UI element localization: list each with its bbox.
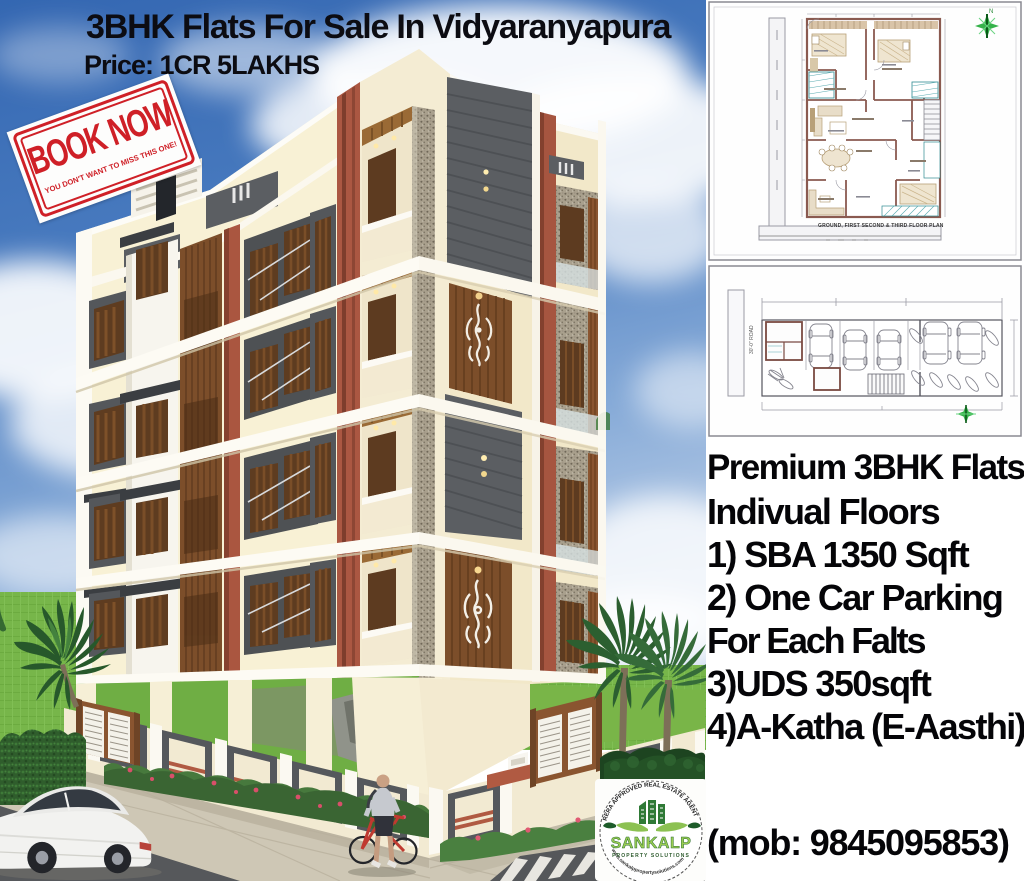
svg-text:GROUND, FIRST SECOND & THIRD F: GROUND, FIRST SECOND & THIRD FLOOR PLAN: [818, 223, 944, 229]
svg-text:N: N: [989, 9, 993, 15]
svg-text:30'-0" ROAD: 30'-0" ROAD: [749, 325, 755, 354]
svg-text:PROPERTY SOLUTIONS: PROPERTY SOLUTIONS: [612, 853, 690, 859]
svg-text:SANKALP: SANKALP: [611, 835, 692, 852]
